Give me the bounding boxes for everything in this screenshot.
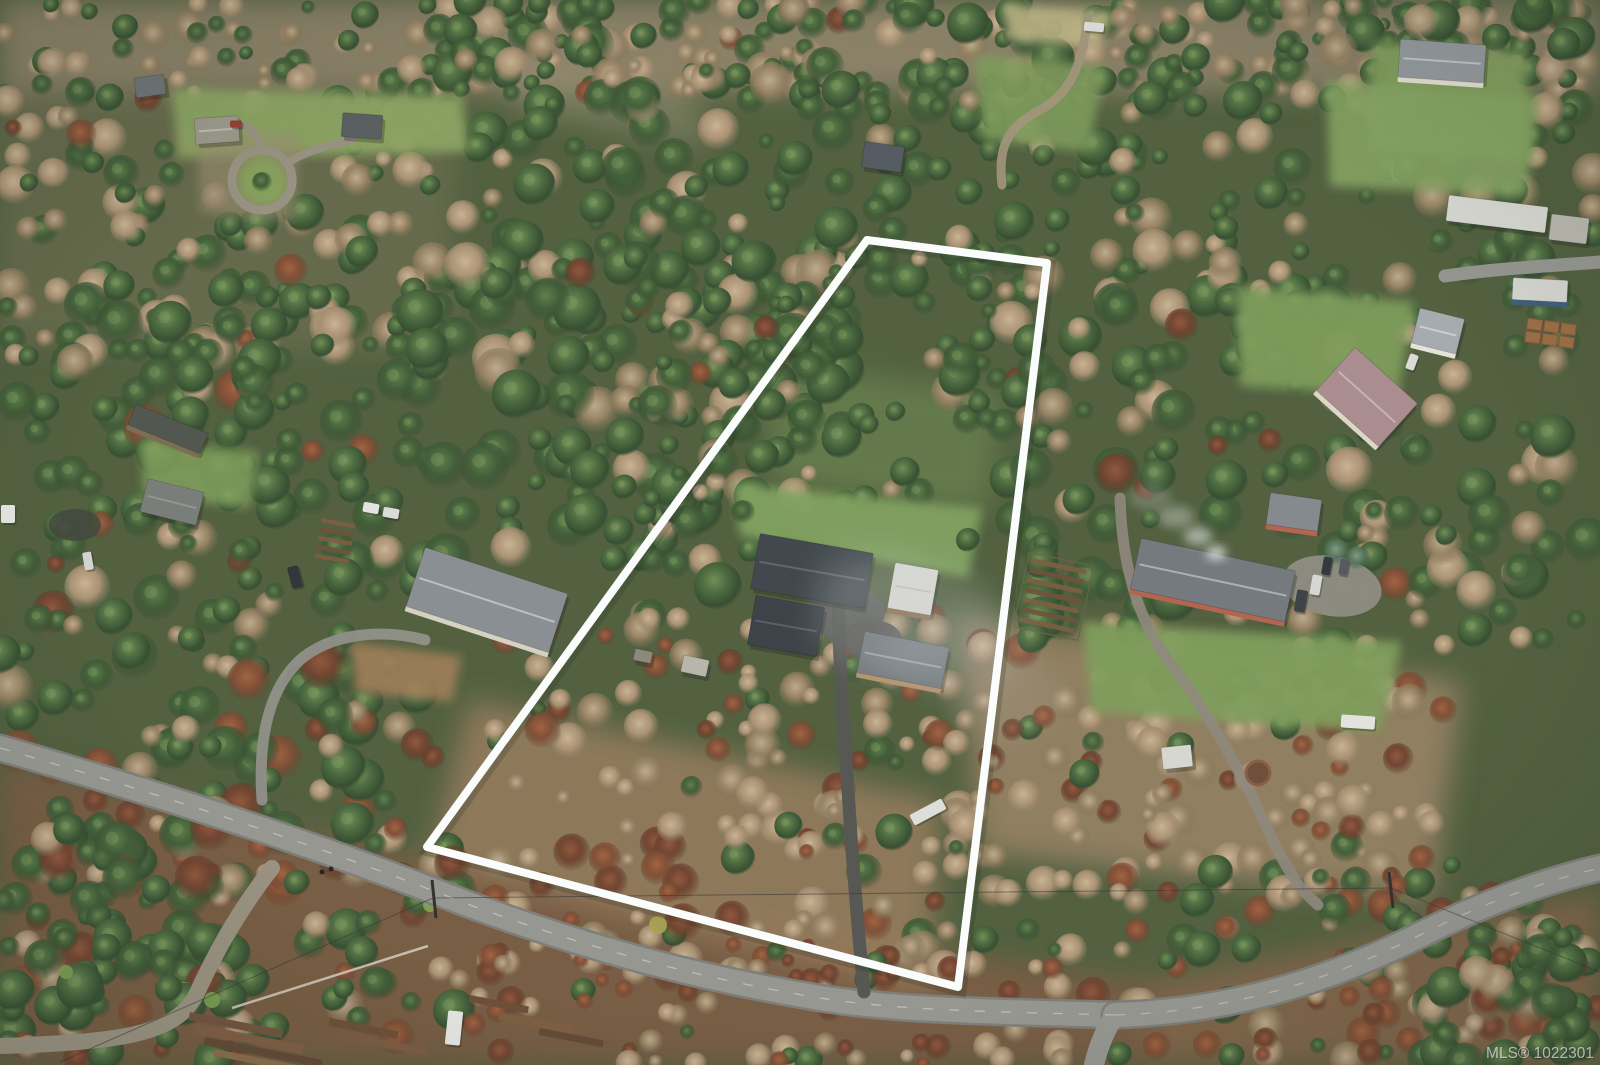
aerial-scene: MLS® 1022301 MLS® 1022301	[0, 0, 1600, 1065]
aerial-photo: MLS® 1022301 MLS® 1022301	[0, 0, 1600, 1065]
cool-tone-overlay	[0, 0, 1600, 1065]
mls-watermark: MLS® 1022301	[1486, 1045, 1594, 1062]
